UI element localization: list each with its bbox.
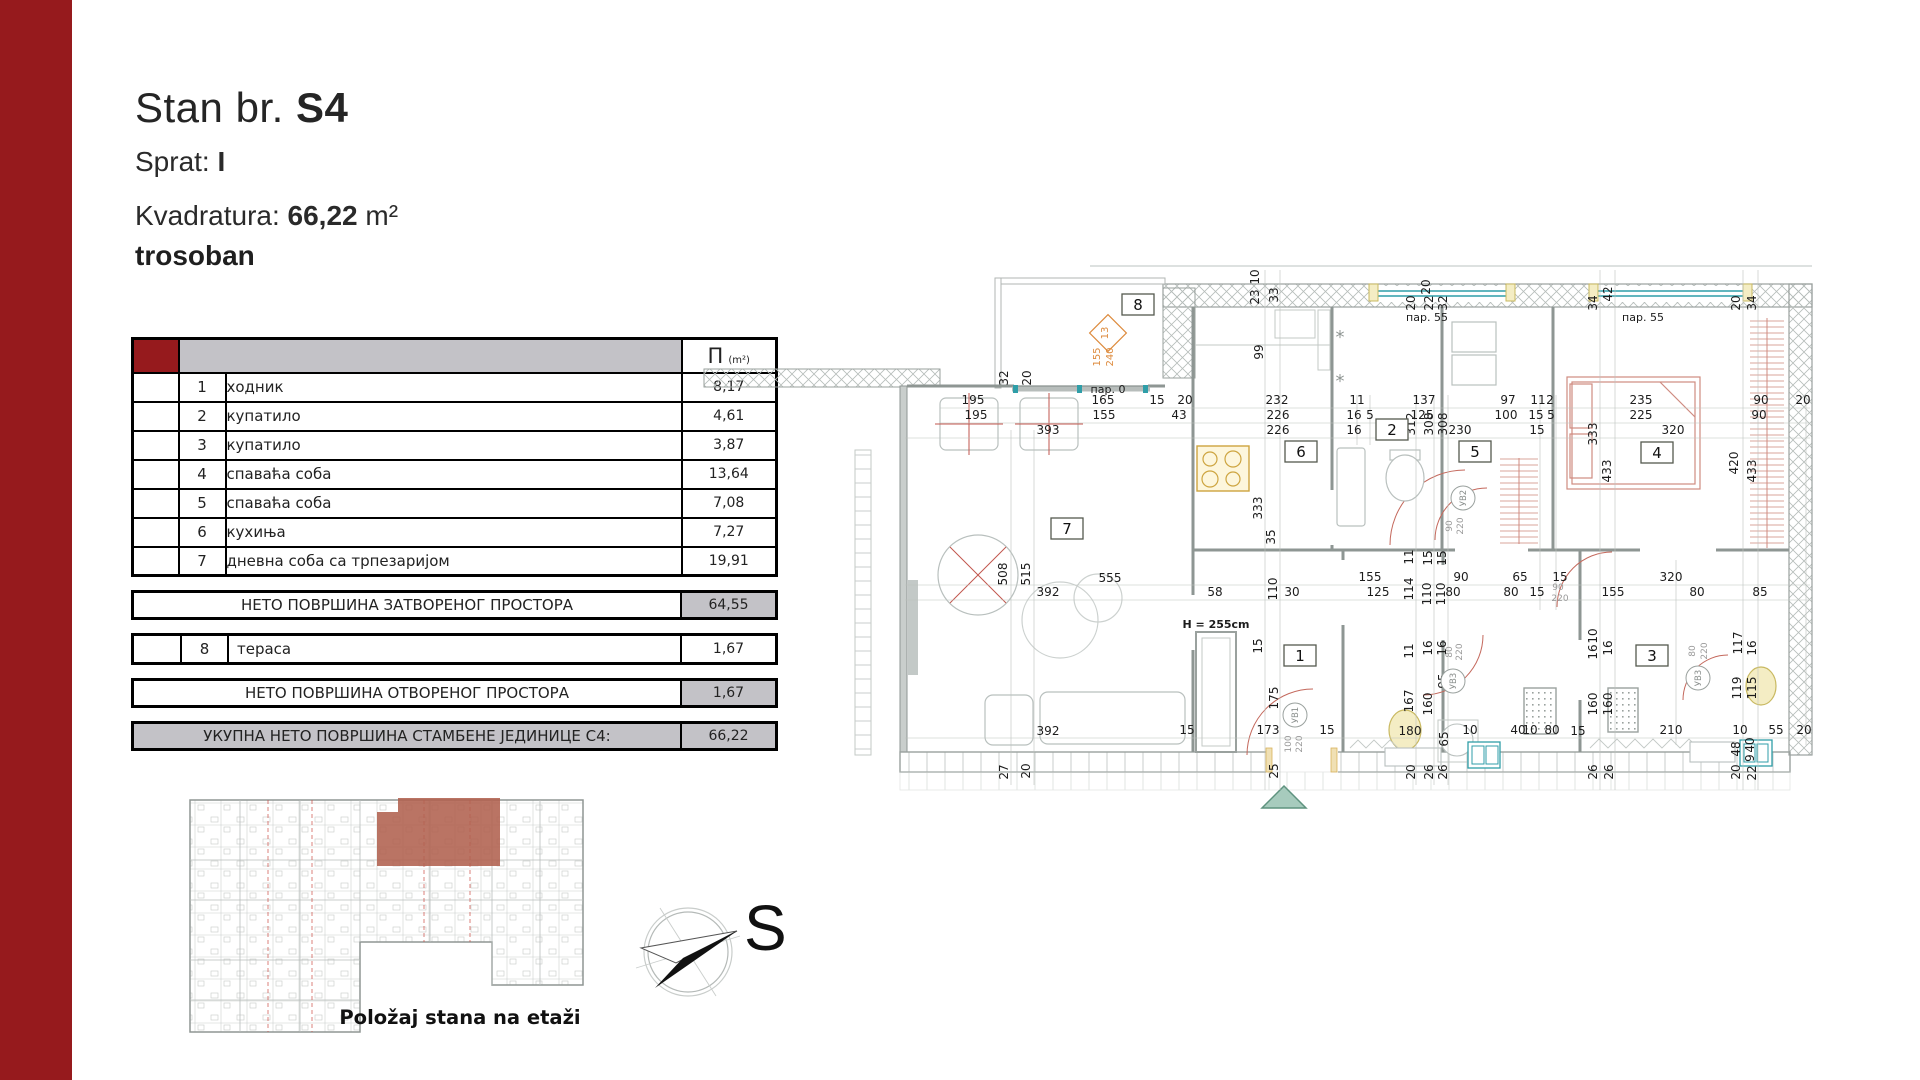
dim-label: 433 [1600,460,1614,483]
dim-label: 10 [1522,723,1537,737]
dim-label: 320 [1660,570,1683,584]
bedroom5-wardrobe [1452,322,1496,385]
room-number: 4 [1652,444,1662,462]
dim-label: 195 [965,408,988,422]
dim-label: 20 [1020,370,1034,385]
dim-label: 97 [1500,393,1515,407]
main-floor-plan: 1951651520232111379711223590201951554322… [704,266,1812,808]
dim-label: 155 [1092,347,1103,366]
dim-label: 10 [1248,269,1262,284]
dim-label: 9 [1743,754,1757,762]
door-label: УВ2 [1459,490,1469,506]
dim-label: 10 [1586,628,1600,643]
north-label: S [744,892,787,964]
dim-label: пар. 0 [1091,383,1126,396]
dim-label: 110 [1266,578,1280,601]
dim-label: 26 [1422,764,1436,779]
dim-label: 65 [1437,731,1451,746]
dim-label: 99 [1252,344,1266,359]
dim-label: 15 [1528,408,1543,422]
dim-label: 30 [1284,585,1299,599]
dim-label: 226 [1267,408,1290,422]
dim-label: 10 [1732,723,1747,737]
dim-label: 333 [1586,423,1600,446]
stove [1197,446,1249,491]
dim-label: 34 [1745,295,1759,310]
dim-label: 80 [1503,585,1518,599]
dim-label: 160 [1601,693,1615,716]
dim-label: 155 [1359,570,1382,584]
dim-label: 90 [1753,393,1768,407]
mini-plan-caption: Položaj stana na etaži [339,1006,580,1029]
dim-label: 220 [1456,517,1466,534]
dim-label: 11 [1349,393,1364,407]
dim-label: 32 [997,370,1011,385]
dim-label: 90 [1453,570,1468,584]
dim-label: 27 [997,764,1011,779]
dim-label: 235 [1630,393,1653,407]
dim-label: * [1336,327,1345,348]
dim-label: 100 [1495,408,1518,422]
dim-label: 85 [1752,585,1767,599]
dim-label: 15 [1251,638,1265,653]
dim-label: 90 [1552,583,1564,593]
dim-label: 15 [1552,570,1567,584]
dim-label: 34 [1586,295,1600,310]
dim-label: 15 [1570,724,1585,738]
dim-label: 137 [1413,393,1436,407]
dim-label: 392 [1037,724,1060,738]
dim-label: 16 [1346,423,1361,437]
dim-label: 308 [1436,413,1450,436]
dim-label: 333 [1251,497,1265,520]
room-number: 5 [1470,443,1480,461]
dim-label: 225 [1630,408,1653,422]
dim-label: 20 [1419,279,1433,294]
toilet [1386,455,1424,501]
room-number: 2 [1387,421,1397,439]
dim-label: 155 [1602,585,1625,599]
dim-label: 220 [1295,735,1305,752]
dim-label: 58 [1207,585,1222,599]
dim-label: 320 [1662,423,1685,437]
bathroom2-fixtures [1337,448,1538,544]
dim-label: 20 [1729,295,1743,310]
dim-label: * [1336,371,1345,392]
dim-label: 26 [1602,764,1616,779]
dim-label: 393 [1037,423,1060,437]
dim-label: 26 [1586,764,1600,779]
dim-label: H = 255cm [1182,618,1249,631]
dim-label: 11 [1402,643,1416,658]
dim-label: 20 [1729,764,1743,779]
dim-label: 20 [1177,393,1192,407]
dim-label: 13 [1100,327,1111,340]
dim-label: 15 [1529,423,1544,437]
dim-label: 392 [1037,585,1060,599]
dim-label: 160 [1421,693,1435,716]
dim-label: 119 [1730,677,1744,700]
compass: S [636,892,787,996]
dim-label: 232 [1266,393,1289,407]
dim-label: 55 [1768,723,1783,737]
dim-label: 20 [1795,393,1810,407]
dim-label: 10 [1462,723,1477,737]
door-label: УВ1 [1291,707,1301,723]
dim-label: 125 [1367,585,1390,599]
dim-label: 15 [1529,585,1544,599]
dim-label: 16 [1586,644,1600,659]
dim-label: 90 [1445,520,1455,532]
dim-label: 115 [1745,677,1759,700]
dim-label: 195 [962,393,985,407]
dim-label: 22 [1422,295,1436,310]
dim-label: 33 [1267,287,1281,302]
room-number: 3 [1647,647,1657,665]
dim-label: 220 [1700,642,1710,659]
dim-label: 230 [1449,423,1472,437]
dim-label: 16 [1601,640,1615,655]
dim-label: 555 [1099,571,1122,585]
floor-plan-canvas: 1951651520232111379711223590201951554322… [0,0,1920,1080]
room-number: 7 [1062,520,1072,538]
dim-label: 515 [1019,563,1033,586]
dim-label: 20 [1019,763,1033,778]
dim-label: 20 [1796,723,1811,737]
dim-label: 167 [1402,690,1416,713]
dim-label: 160 [1586,693,1600,716]
door-swing-arcs [1247,470,1728,755]
dim-label: 175 [1267,687,1281,710]
dim-label: 80 [1689,585,1704,599]
dim-label: 5 [1366,408,1374,422]
dim-label: 20 [1404,295,1418,310]
dim-label: 20 [1404,764,1418,779]
dim-label: 100 [1284,735,1294,752]
dim-label: 90 [1751,408,1766,422]
dim-label: 15 [1435,550,1449,565]
room-number: 1 [1295,647,1305,665]
dim-label: 23 [1248,289,1262,304]
room-number: 6 [1296,443,1306,461]
dim-label: 110 [1420,583,1434,606]
room-number: 8 [1133,296,1143,314]
living-room-furniture [908,398,1185,745]
dim-label: 16 [1421,640,1435,655]
dim-label: 35 [1264,529,1278,544]
dim-label: 420 [1727,452,1741,475]
dim-label: 117 [1731,632,1745,655]
dim-label: 433 [1745,460,1759,483]
dim-label: 173 [1257,723,1280,737]
dim-label: 80 [1544,723,1559,737]
dim-label: 16 [1745,640,1759,655]
dim-label: 22 [1745,765,1759,780]
dim-label: 65 [1512,570,1527,584]
dim-label: 11 [1530,393,1545,407]
dim-label: 40 [1743,737,1757,752]
door-label: УВ3 [1449,673,1459,689]
dim-label: 80 [1445,646,1455,658]
dim-label: 26 [1436,764,1450,779]
dim-label: 25 [1267,763,1281,778]
dim-label: 16 [1346,408,1361,422]
dim-label: 80 [1445,585,1460,599]
door-label: УВ3 [1694,670,1704,686]
dim-label: 155 [1093,408,1116,422]
dim-label: 508 [996,563,1010,586]
terrace-railing-top [995,278,1165,284]
kitchen-fixtures [1195,310,1330,491]
mini-position-plan: Položaj stana na etaži [190,798,583,1032]
dim-label: 5 [1547,408,1555,422]
dim-label: 15 [1421,550,1435,565]
dim-label: 42 [1601,286,1615,301]
dim-label: 80 [1688,645,1698,657]
dim-label: 220 [1455,643,1465,660]
dim-label: 180 [1399,724,1422,738]
dim-label: пар. 55 [1622,311,1664,324]
dim-label: 48 [1729,741,1743,756]
window-north-2 [1598,286,1745,302]
dim-label: 15 [1179,723,1194,737]
dim-label: 210 [1660,723,1683,737]
washbasin [1337,448,1365,526]
dim-label: 226 [1267,423,1290,437]
dim-label: пар. 55 [1406,311,1448,324]
dim-label: 240 [1105,347,1116,366]
dim-label: 15 [1149,393,1164,407]
dim-label: 32 [1436,295,1450,310]
dim-label: 43 [1171,408,1186,422]
dim-label: 2 [1546,393,1554,407]
dim-label: 11 [1402,549,1416,564]
dim-label: 308 [1422,413,1436,436]
dim-label: 15 [1319,723,1334,737]
dim-label: 114 [1402,578,1416,601]
dim-label: 220 [1551,594,1568,604]
